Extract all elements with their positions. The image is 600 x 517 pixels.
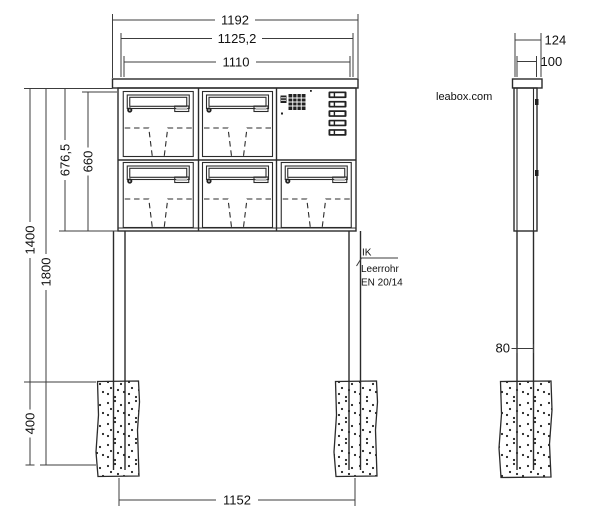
dim-label-1800: 1800	[39, 258, 54, 287]
mailbox-door	[281, 163, 351, 228]
dim-label-676-5: 676,5	[58, 144, 73, 177]
call-button	[329, 129, 347, 136]
callout-line2: Leerrohr	[361, 264, 399, 275]
dim-post-spacing: 1152	[119, 478, 355, 508]
call-button	[329, 110, 347, 117]
hood-front	[113, 79, 359, 88]
dim-label-1152: 1152	[223, 493, 251, 508]
mailbox-cabinet	[118, 88, 356, 231]
mailbox-door	[203, 92, 273, 157]
panel-dot	[281, 113, 283, 115]
dim-label-100: 100	[541, 54, 563, 69]
dim-height-box-inner: 660	[81, 92, 96, 231]
dim-foundation-depth: 400	[23, 382, 38, 465]
dim-depth-body: 100	[517, 54, 562, 77]
dim-label-124: 124	[545, 33, 567, 48]
foundation-right	[334, 381, 378, 477]
foundation-left	[96, 381, 140, 477]
call-buttons	[329, 92, 347, 136]
mailbox-door	[203, 163, 273, 228]
call-button	[329, 92, 347, 99]
cabinet-side	[514, 88, 539, 234]
mailbox-door	[123, 92, 193, 157]
dim-height-ground: 1400	[23, 89, 38, 383]
front-view: 1192 1125,2 1110	[23, 13, 404, 508]
dim-height-box-outer: 676,5	[58, 89, 73, 232]
dim-label-1192: 1192	[221, 13, 249, 28]
call-button	[329, 101, 347, 108]
conduit-callout: IK Leerrohr EN 20/14	[357, 248, 404, 289]
speaker-grille-icon	[289, 94, 306, 110]
hinge-knob	[535, 170, 539, 176]
brand-label: leabox.com	[436, 91, 492, 103]
dim-label-1125-2: 1125,2	[218, 31, 257, 46]
dim-post-depth: 80	[496, 341, 534, 356]
dim-width-body: 1110	[124, 55, 350, 78]
dim-label-1110: 1110	[223, 55, 250, 70]
mailbox-door	[123, 163, 193, 228]
technical-drawing: 1192 1125,2 1110	[0, 0, 600, 517]
intercom-panel	[281, 90, 347, 136]
dim-label-660: 660	[81, 151, 96, 173]
drawing-canvas: 1192 1125,2 1110	[0, 0, 600, 517]
panel-dot	[310, 90, 312, 92]
dim-label-400: 400	[23, 413, 38, 435]
hood-side	[513, 79, 543, 88]
callout-line3: EN 20/14	[361, 278, 403, 289]
callout-line1: IK	[362, 248, 372, 259]
hinge-knob	[535, 99, 539, 105]
dim-label-1400: 1400	[23, 226, 38, 255]
dim-height-total: 1800	[39, 89, 54, 466]
call-button	[329, 120, 347, 127]
foundation-side	[499, 381, 552, 478]
dim-label-80: 80	[496, 341, 510, 356]
side-view: 124 100 80 leabox.com	[436, 33, 566, 478]
speaker-small-icon	[281, 96, 287, 104]
